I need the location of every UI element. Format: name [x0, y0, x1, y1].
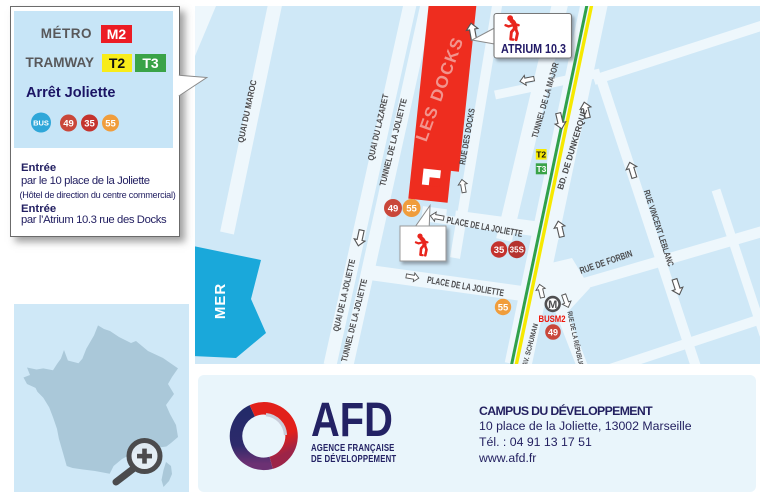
- svg-text:55: 55: [406, 204, 417, 215]
- svg-text:55: 55: [105, 119, 116, 130]
- svg-text:ATRIUM 10.3: ATRIUM 10.3: [501, 42, 566, 56]
- svg-text:49: 49: [548, 328, 558, 338]
- svg-text:BUS: BUS: [33, 119, 49, 128]
- svg-text:MER: MER: [212, 283, 229, 319]
- svg-text:49: 49: [63, 119, 74, 130]
- svg-text:BUSM2: BUSM2: [539, 314, 566, 324]
- svg-text:M: M: [548, 299, 557, 311]
- svg-text:49: 49: [388, 204, 399, 215]
- svg-text:35S: 35S: [510, 246, 525, 255]
- svg-text:35: 35: [494, 245, 505, 256]
- svg-text:T3: T3: [536, 164, 546, 174]
- svg-text:T2: T2: [536, 150, 546, 160]
- svg-text:55: 55: [498, 303, 509, 314]
- svg-text:35: 35: [84, 119, 95, 130]
